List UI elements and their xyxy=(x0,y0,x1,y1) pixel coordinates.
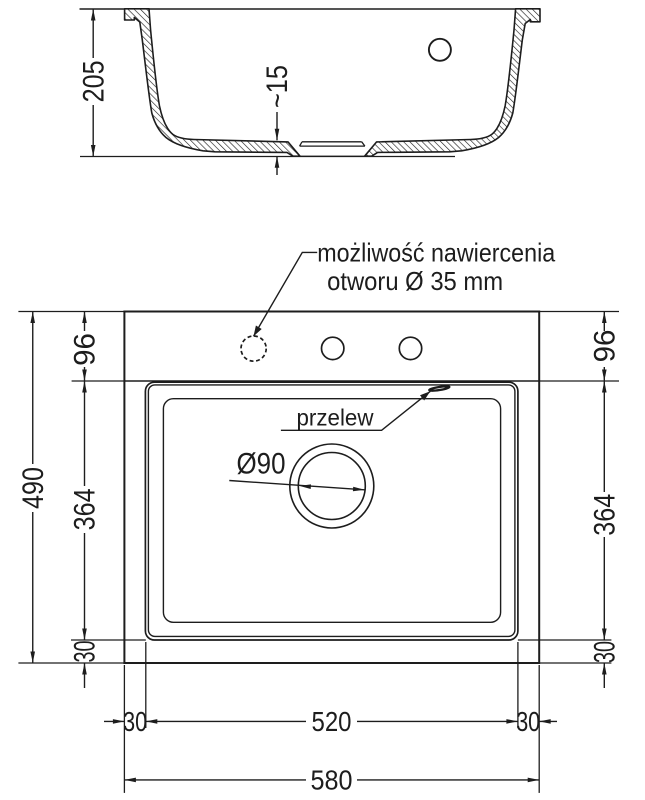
svg-text:~15: ~15 xyxy=(261,65,294,108)
svg-text:30: 30 xyxy=(516,706,540,737)
svg-text:możliwość nawiercenia: możliwość nawiercenia xyxy=(317,238,555,268)
svg-text:96: 96 xyxy=(69,333,102,366)
svg-text:przelew: przelew xyxy=(297,405,374,431)
svg-text:30: 30 xyxy=(589,641,622,663)
svg-text:364: 364 xyxy=(589,494,622,536)
svg-text:Ø90: Ø90 xyxy=(237,448,286,481)
svg-text:otworu Ø 35 mm: otworu Ø 35 mm xyxy=(327,266,503,296)
svg-text:30: 30 xyxy=(69,641,102,663)
svg-text:490: 490 xyxy=(17,467,50,509)
svg-text:205: 205 xyxy=(77,60,110,102)
svg-text:580: 580 xyxy=(311,765,353,796)
svg-text:96: 96 xyxy=(589,330,622,363)
svg-text:520: 520 xyxy=(312,706,352,737)
svg-text:364: 364 xyxy=(69,488,102,530)
svg-text:30: 30 xyxy=(123,706,147,737)
